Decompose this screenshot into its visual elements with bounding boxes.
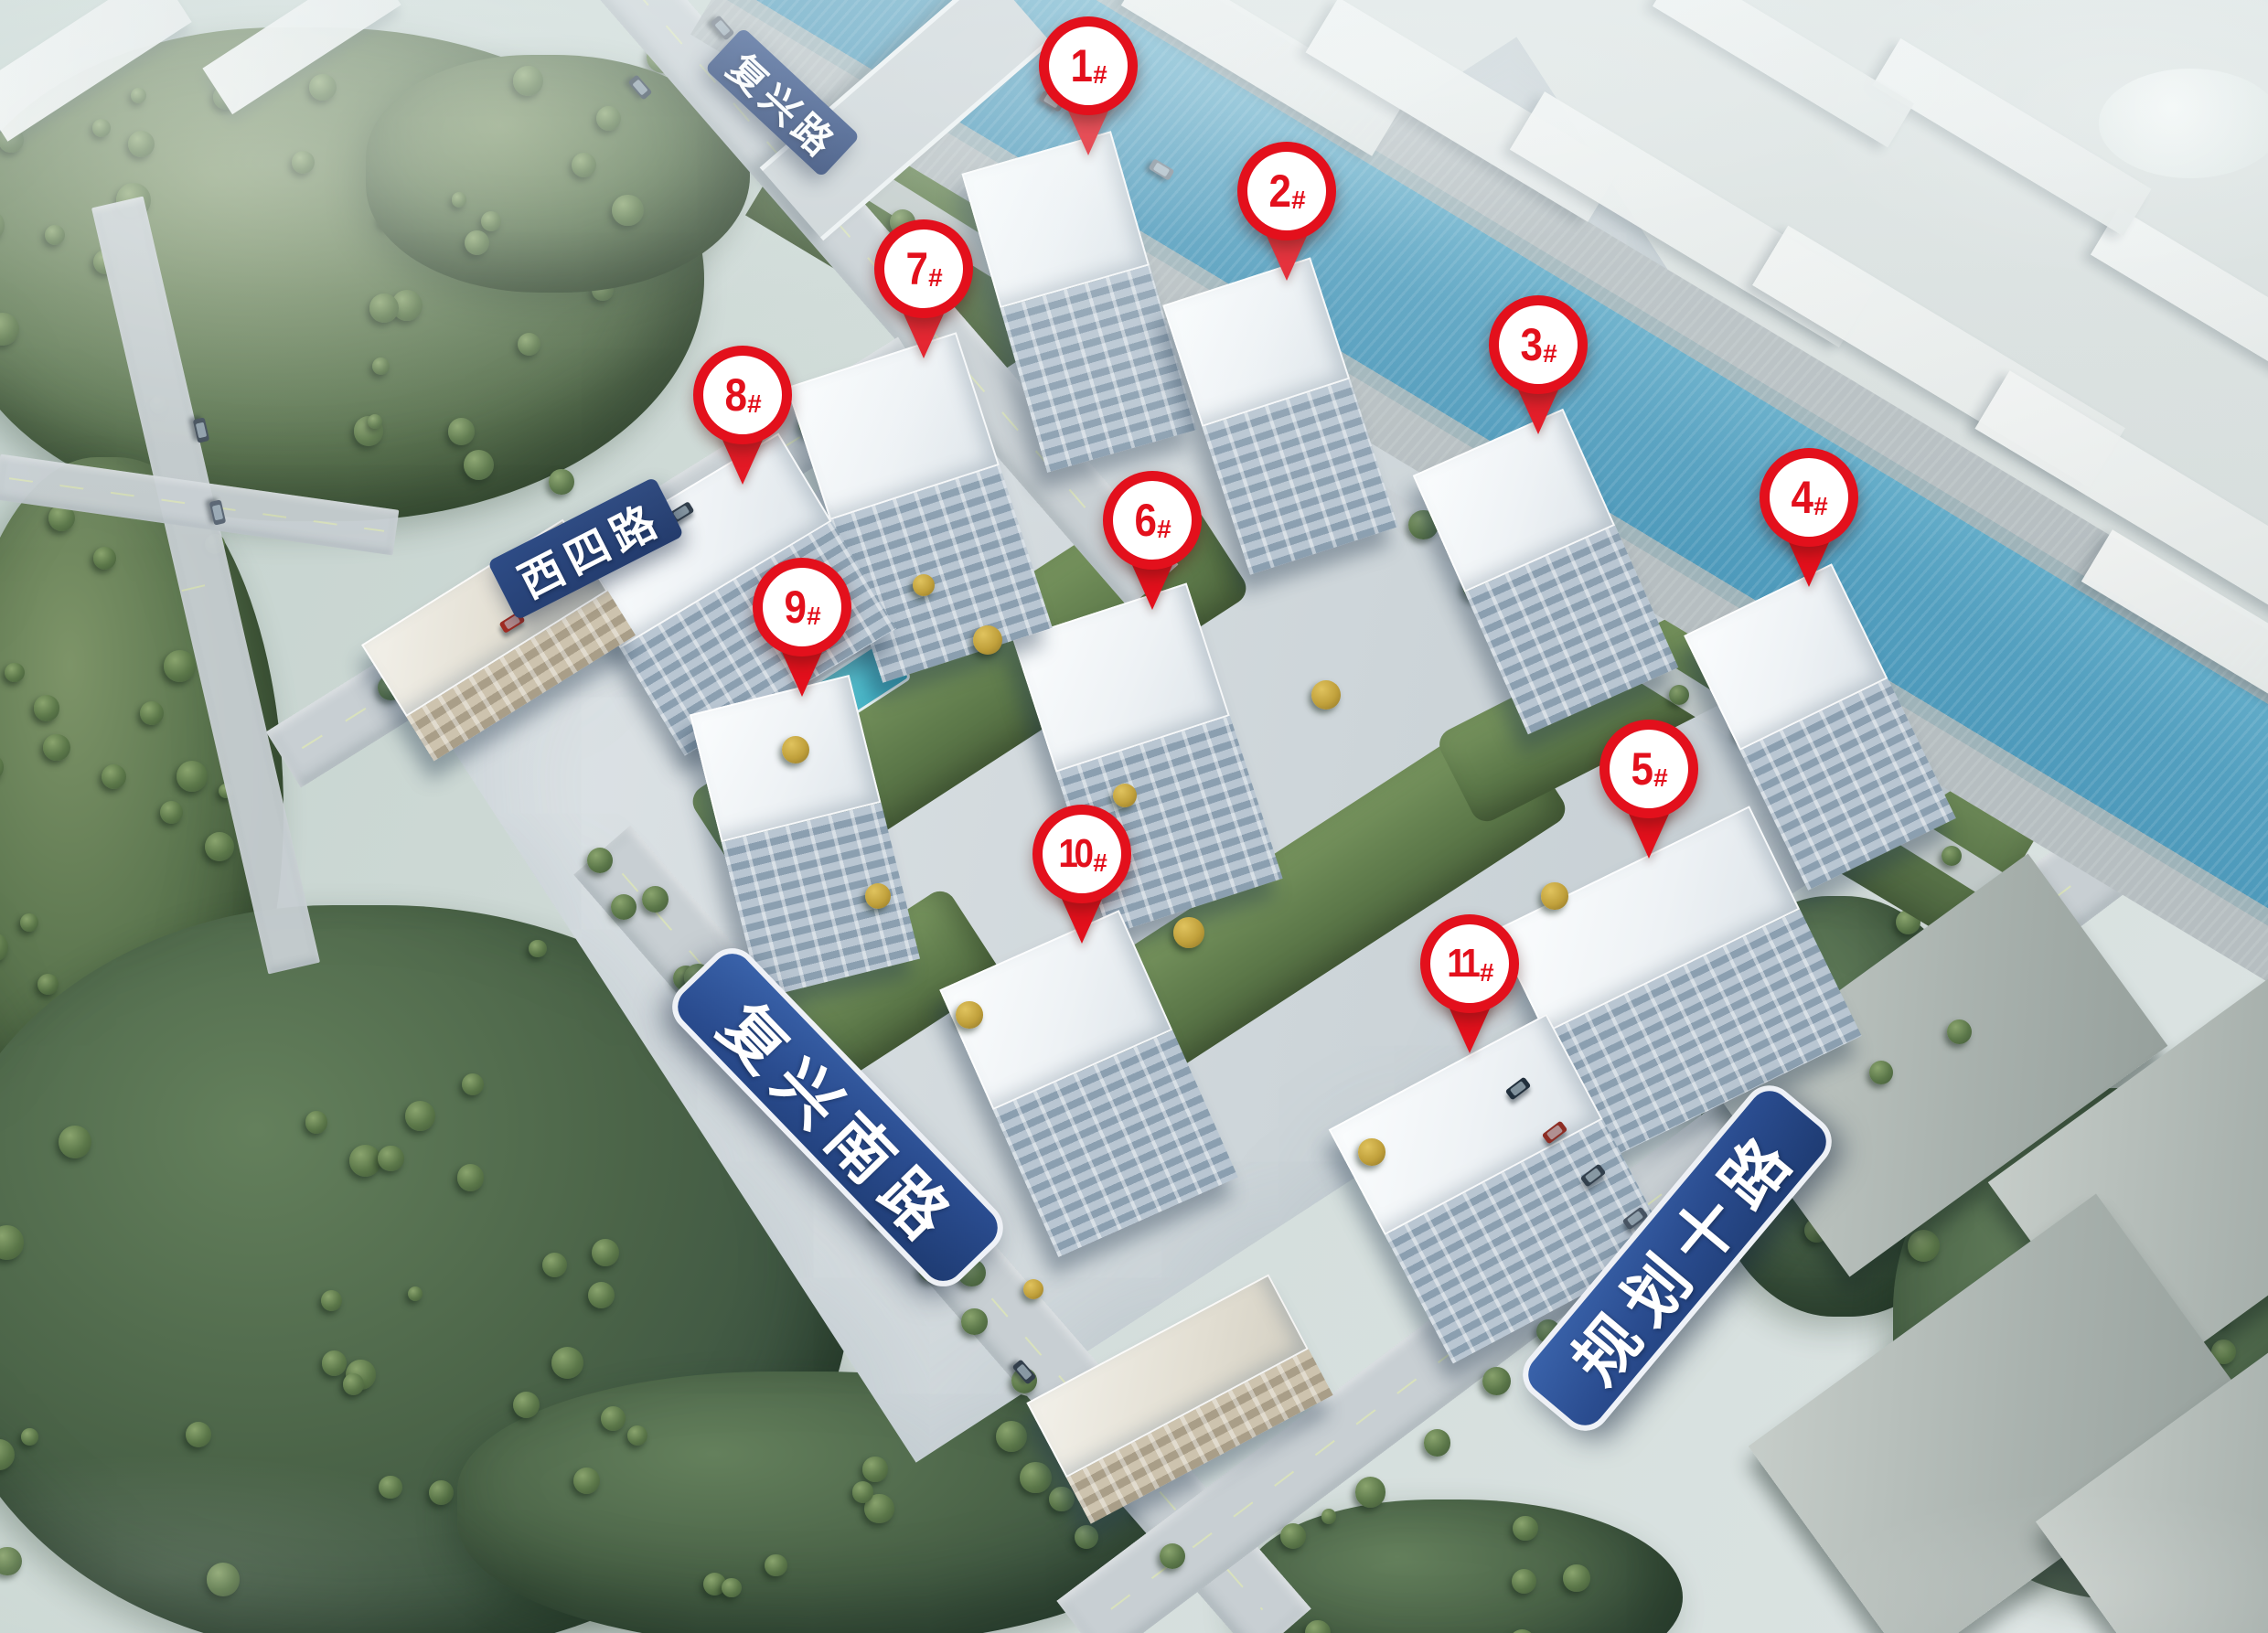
tree-icon [131, 88, 146, 103]
tree-icon [529, 940, 546, 957]
building-marker-5[interactable]: 5# [1599, 720, 1698, 857]
tree-icon [513, 66, 543, 96]
tree-icon [140, 701, 164, 725]
marker-number: 2 [1269, 168, 1289, 214]
marker-circle: 6# [1103, 471, 1202, 570]
marker-circle: 9# [753, 558, 851, 656]
tree-icon [43, 734, 70, 761]
accent-tree-icon [1173, 917, 1204, 948]
accent-tree-icon [956, 1001, 982, 1028]
tree-icon [1424, 1429, 1450, 1456]
tree-icon [207, 1563, 241, 1596]
marker-hash: # [928, 265, 943, 291]
tree-icon [1908, 1230, 1940, 1262]
marker-hash: # [1093, 62, 1107, 88]
building-marker-3[interactable]: 3# [1489, 295, 1588, 432]
tree-icon [612, 195, 643, 226]
marker-circle: 1# [1039, 16, 1138, 115]
marker-number: 1 [1071, 43, 1091, 89]
marker-hash: # [1480, 960, 1494, 986]
tree-icon [1482, 1367, 1511, 1395]
tree-icon [573, 1468, 600, 1494]
tree-icon [93, 547, 116, 570]
tree-icon [765, 1554, 787, 1577]
tree-icon [551, 1347, 583, 1379]
tree-icon [378, 1146, 403, 1171]
marker-circle: 7# [874, 219, 973, 318]
marker-number: 5 [1631, 746, 1652, 792]
marker-number: 6 [1135, 497, 1155, 543]
building-marker-11[interactable]: 11# [1420, 914, 1519, 1051]
tree-icon [34, 695, 59, 720]
tree-icon [518, 333, 540, 356]
tree-icon [862, 1457, 887, 1481]
marker-circle: 4# [1760, 448, 1858, 547]
marker-hash: # [1653, 765, 1668, 791]
accent-tree-icon [973, 625, 1002, 655]
accent-tree-icon [1358, 1138, 1385, 1165]
marker-hash: # [1543, 341, 1557, 367]
tree-icon [322, 1350, 348, 1376]
tree-icon [177, 761, 208, 792]
site-plan: 玉龙河 玉龙河滨河公园 体育公园 （规划中） 銀豐地産 YINFENG REAL… [0, 0, 2268, 1633]
tree-icon [292, 151, 315, 174]
tree-icon [1049, 1487, 1075, 1512]
tree-icon [5, 663, 24, 682]
building-marker-4[interactable]: 4# [1760, 448, 1858, 585]
marker-hash: # [807, 603, 821, 629]
tree-icon [343, 1373, 364, 1394]
marker-circle: 2# [1237, 142, 1336, 240]
accent-tree-icon [782, 736, 809, 763]
tree-icon [457, 1164, 484, 1190]
building-marker-8[interactable]: 8# [693, 346, 792, 483]
marker-hash: # [747, 391, 762, 417]
marker-hash: # [1093, 850, 1107, 876]
marker-number: 4 [1792, 475, 1812, 520]
building-marker-6[interactable]: 6# [1103, 471, 1202, 608]
tree-icon [349, 1145, 381, 1177]
tree-icon [596, 106, 621, 131]
tree-icon [1563, 1564, 1589, 1591]
marker-circle: 8# [693, 346, 792, 444]
tree-icon [549, 469, 574, 495]
tree-icon [465, 230, 489, 255]
marker-circle: 10# [1032, 805, 1131, 903]
far-pond [2099, 69, 2268, 178]
marker-number: 10 [1059, 834, 1090, 874]
tree-icon [405, 1101, 435, 1131]
building-marker-10[interactable]: 10# [1032, 805, 1131, 942]
tree-icon [102, 764, 126, 789]
marker-number: 7 [906, 246, 926, 292]
marker-circle: 11# [1420, 914, 1519, 1013]
tree-icon [481, 211, 501, 231]
tree-icon [601, 1406, 626, 1431]
accent-tree-icon [1541, 882, 1567, 909]
tree-icon [20, 913, 38, 932]
tree-icon [45, 225, 65, 245]
tree-icon [452, 192, 466, 207]
tree-icon [611, 894, 637, 920]
tree-icon [379, 1476, 401, 1499]
tree-icon [1942, 846, 1962, 866]
tree-icon [309, 74, 336, 101]
tree-icon [164, 650, 196, 682]
tree-icon [1321, 1509, 1336, 1523]
tree-icon [1020, 1462, 1052, 1494]
tree-icon [852, 1481, 873, 1502]
marker-hash: # [1157, 517, 1171, 542]
tree-icon [448, 418, 476, 445]
marker-number: 11 [1448, 944, 1477, 984]
marker-hash: # [1291, 187, 1306, 213]
building-marker-2[interactable]: 2# [1237, 142, 1336, 279]
marker-number: 3 [1521, 322, 1541, 368]
tree-icon [572, 153, 597, 178]
tree-icon [59, 1126, 91, 1158]
tree-icon [961, 1308, 987, 1334]
tree-icon [205, 832, 234, 861]
building-marker-1[interactable]: 1# [1039, 16, 1138, 154]
building-marker-9[interactable]: 9# [753, 558, 851, 695]
tree-icon [587, 848, 613, 873]
marker-circle: 5# [1599, 720, 1698, 818]
marker-hash: # [1813, 494, 1828, 519]
marker-circle: 3# [1489, 295, 1588, 394]
tree-icon [1355, 1477, 1386, 1508]
marker-number: 9 [785, 584, 805, 630]
tree-icon [1513, 1516, 1538, 1542]
marker-number: 8 [725, 372, 745, 418]
building-marker-7[interactable]: 7# [874, 219, 973, 357]
tree-icon [429, 1480, 454, 1505]
tree-icon [369, 294, 399, 323]
tree-icon [722, 1578, 741, 1597]
tree-icon [592, 1239, 619, 1266]
tree-icon [464, 450, 494, 480]
tree-icon [21, 1428, 38, 1446]
